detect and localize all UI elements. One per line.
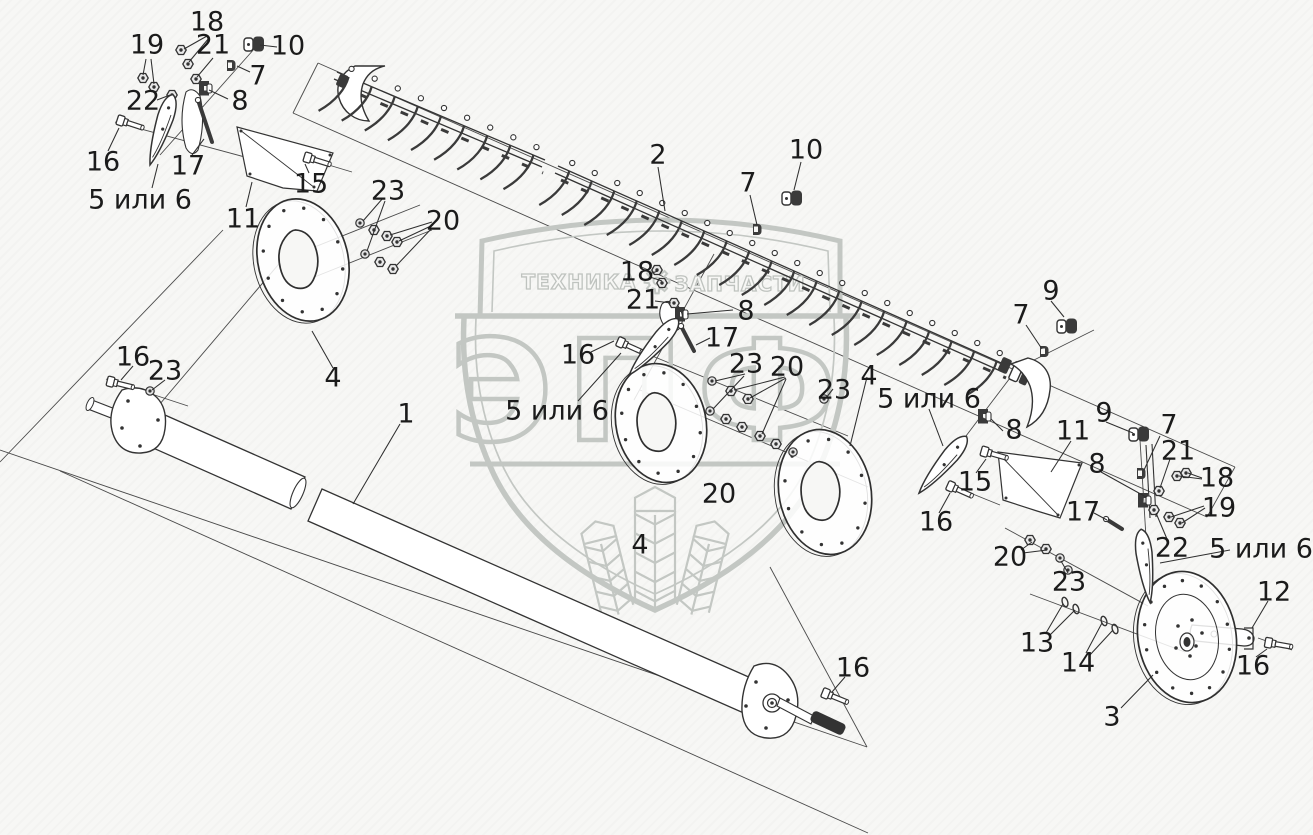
nut-icon: [375, 258, 385, 267]
cutter-tooth-icon: [365, 96, 395, 130]
bar-hole: [570, 160, 575, 165]
callout-label: 10: [271, 31, 305, 62]
callout-label: 10: [789, 135, 823, 166]
callout-label: 15: [294, 169, 328, 200]
holder-clamp-icon: [244, 37, 264, 52]
leader-line: [209, 90, 228, 99]
nut-icon: [1041, 545, 1051, 554]
bar-hole: [511, 135, 516, 140]
callout-label: 16: [1236, 651, 1270, 682]
bolt-icon: [116, 115, 146, 133]
ring-seal-icon: [1111, 624, 1119, 635]
callout-label: 15: [958, 467, 992, 498]
callout-label: 8: [1005, 415, 1022, 446]
nut-icon: [382, 232, 392, 241]
bar-hole: [727, 230, 732, 235]
bar-hole: [705, 220, 710, 225]
callout-label: 16: [561, 340, 595, 371]
callout-label: 4: [324, 363, 341, 394]
callout-label: 17: [1066, 497, 1100, 528]
knife-guard-left-icon: [338, 66, 385, 121]
leader-line: [143, 59, 146, 75]
callout-label: 23: [371, 176, 405, 207]
leader-line: [151, 59, 154, 84]
callout-label: 23: [148, 356, 182, 387]
cutter-tooth-icon: [539, 171, 569, 205]
cutter-tooth-icon: [899, 331, 929, 365]
callout-label: 22: [126, 86, 160, 117]
nut-icon: [771, 440, 781, 449]
nut-icon: [176, 46, 186, 55]
callout-label: 5 или 6: [88, 185, 192, 216]
bar-hole: [862, 290, 867, 295]
callout-label: 16: [836, 653, 870, 684]
callout-label: 11: [1056, 416, 1090, 447]
callout-label: 8: [231, 86, 248, 117]
bar-hole: [795, 260, 800, 265]
cutter-tooth-icon: [503, 155, 533, 189]
leader-line: [750, 195, 757, 225]
washer-icon: [1056, 554, 1064, 562]
washer-icon: [356, 219, 364, 227]
callout-label: 5 или 6: [1209, 534, 1313, 565]
ring-seal-icon: [1072, 604, 1080, 615]
callout-label: 20: [993, 542, 1027, 573]
cutter-tooth-icon: [877, 321, 907, 355]
cutter-tooth-icon: [922, 341, 952, 375]
callout-label: 18: [620, 257, 654, 288]
diagram-canvas: ТЕХНИКА ЗАПЧАСТИ ЭПФ: [0, 0, 1313, 835]
callout-label: 4: [631, 530, 648, 561]
cutter-tooth-icon: [411, 116, 441, 150]
callout-label: 16: [86, 147, 120, 178]
callout-label: 5 или 6: [877, 384, 981, 415]
drive-disc-3: [1123, 563, 1246, 712]
callout-label: 3: [1103, 702, 1120, 733]
leader-line: [929, 409, 943, 446]
callout-label: 18: [1200, 463, 1234, 494]
callout-label: 5 или 6: [505, 396, 609, 427]
callout-label: 16: [919, 507, 953, 538]
callout-label: 21: [626, 285, 660, 316]
callout-label: 21: [1161, 436, 1195, 467]
leader-line: [353, 424, 400, 504]
callout-label: 12: [1257, 577, 1291, 608]
bar-hole: [997, 350, 1002, 355]
callout-label: 23: [1052, 567, 1086, 598]
bar-hole: [395, 86, 400, 91]
bar-hole: [975, 340, 980, 345]
callout-label: 9: [1095, 398, 1112, 429]
callout-label: 20: [426, 206, 460, 237]
callout-label: 9: [1042, 276, 1059, 307]
callout-label: 13: [1020, 628, 1054, 659]
bar-hole: [885, 300, 890, 305]
bar-hole: [840, 280, 845, 285]
nut-icon: [392, 238, 402, 247]
bar-hole: [349, 66, 354, 71]
cutter-tooth-icon: [480, 145, 510, 179]
washer-icon: [789, 448, 797, 456]
bar-hole: [465, 115, 470, 120]
holder-clamp-icon: [1129, 427, 1149, 442]
bar-hole: [592, 170, 597, 175]
washer-icon: [706, 407, 714, 415]
bar-hole: [534, 145, 539, 150]
nut-icon: [743, 395, 753, 404]
holder-clamp-icon: [1057, 319, 1077, 334]
callout-label: 19: [1202, 493, 1236, 524]
callout-label: 8: [737, 296, 754, 327]
leader-line: [197, 58, 213, 77]
callout-label: 7: [249, 61, 266, 92]
holder-clamp-icon: [782, 191, 802, 206]
bar-hole: [418, 96, 423, 101]
bolt-icon: [820, 687, 850, 707]
callout-label: 23: [729, 349, 763, 380]
leader-line: [237, 66, 250, 72]
leader-line: [991, 419, 1003, 431]
callout-label: 8: [1088, 449, 1105, 480]
bar-hole: [488, 125, 493, 130]
leader-line: [367, 201, 385, 251]
nut-icon: [737, 423, 747, 432]
nut-icon: [755, 432, 765, 441]
nut-icon: [1175, 519, 1185, 528]
nut-icon: [183, 60, 193, 69]
callout-label: 22: [1155, 533, 1189, 564]
bar-hole: [372, 76, 377, 81]
callout-label: 4: [860, 361, 877, 392]
bar-hole: [750, 240, 755, 245]
cutter-tooth-icon: [457, 136, 487, 170]
leader-line: [1121, 675, 1153, 708]
bar-hole: [637, 190, 642, 195]
nut-icon: [1154, 487, 1164, 496]
callout-label: 7: [739, 168, 756, 199]
nut-icon: [721, 415, 731, 424]
callout-label: 1: [397, 399, 414, 430]
bar-hole: [907, 310, 912, 315]
callout-label: 11: [226, 204, 260, 235]
bar-hole: [441, 105, 446, 110]
callout-label: 20: [770, 352, 804, 383]
clip-icon: [753, 224, 762, 235]
exploded-parts-diagram: ТЕХНИКА ЗАПЧАСТИ ЭПФ: [0, 0, 1313, 835]
washer-icon: [146, 387, 154, 395]
callout-label: 2: [649, 140, 666, 171]
callout-label: 21: [196, 30, 230, 61]
bar-hole: [615, 180, 620, 185]
nut-icon: [1149, 506, 1159, 515]
callout-label: 23: [817, 375, 851, 406]
cutter-tooth-icon: [944, 351, 974, 385]
cutter-tooth-icon: [434, 126, 464, 160]
bar-hole: [930, 320, 935, 325]
bar-hole: [682, 210, 687, 215]
callout-label: 16: [116, 342, 150, 373]
nut-icon: [369, 226, 379, 235]
callout-label: 14: [1061, 648, 1095, 679]
leader-line: [794, 162, 801, 190]
washer-icon: [361, 250, 369, 258]
cutter-tooth-icon: [562, 181, 592, 215]
callout-label: 17: [171, 151, 205, 182]
callout-label: 7: [1012, 300, 1029, 331]
clip-icon: [227, 60, 236, 71]
washer-icon: [708, 377, 716, 385]
clamp-icon: [199, 81, 212, 96]
bar-hole: [772, 250, 777, 255]
bar-hole: [817, 270, 822, 275]
callout-label: 20: [702, 479, 736, 510]
callout-label: 19: [130, 30, 164, 61]
bar-hole: [952, 330, 957, 335]
